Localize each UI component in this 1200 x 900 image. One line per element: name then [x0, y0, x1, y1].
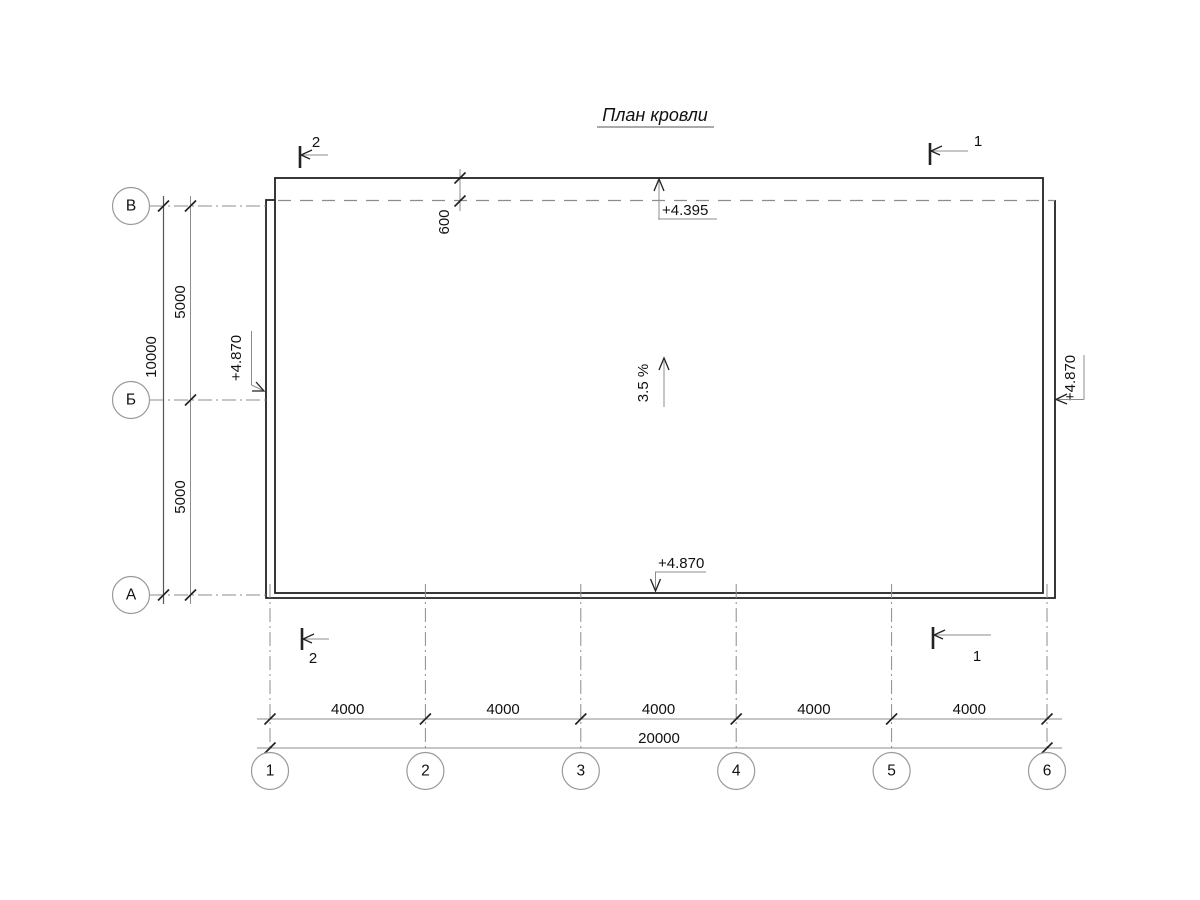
- drawing-title: План кровли: [602, 105, 708, 125]
- section-mark-bottom-left: 2: [302, 628, 329, 667]
- section-mark-top-right: 1: [930, 133, 982, 165]
- axis-bubble-3-label: 3: [576, 763, 585, 780]
- dim-text-row-span-1: 5000: [172, 285, 189, 318]
- elevation-text-right: +4.870: [1062, 355, 1079, 401]
- dim-text-col-total: 20000: [638, 730, 680, 747]
- building-outlines: [266, 178, 1055, 598]
- elevation-text-left: +4.870: [228, 335, 245, 381]
- row-axis-lines: [150, 206, 266, 595]
- elevation-mark-bottom: +4.870: [651, 555, 707, 591]
- section-label: 1: [974, 133, 982, 150]
- axis-bubble-a-label: А: [126, 587, 137, 604]
- dim-text-row-span-2: 5000: [172, 480, 189, 513]
- section-label: 2: [312, 134, 320, 151]
- section-label: 2: [309, 650, 317, 667]
- elevation-mark-right: +4.870: [1056, 355, 1084, 404]
- dim-text-col-span-1: 4000: [331, 701, 364, 718]
- axis-bubble-5-label: 5: [887, 763, 896, 780]
- elevation-mark-left: +4.870: [228, 331, 264, 391]
- axis-bubble-6-label: 6: [1043, 763, 1052, 780]
- axis-bubble-1-label: 1: [266, 763, 275, 780]
- eaves-outer-outline: [266, 200, 1055, 598]
- roof-plan-drawing: План кровли В Б А 5000 5000 10000: [0, 0, 1200, 900]
- dim-text-col-span-3: 4000: [642, 701, 675, 718]
- bottom-dimension-block: 4000 4000 4000 4000 4000 20000: [257, 701, 1062, 754]
- elevation-text-top: +4.395: [662, 202, 708, 219]
- section-mark-top-left: 2: [300, 134, 328, 168]
- dim-text-col-span-4: 4000: [797, 701, 830, 718]
- section-label: 1: [973, 648, 981, 665]
- dim-text-col-span-2: 4000: [486, 701, 519, 718]
- dim-text-overhang: 600: [436, 209, 453, 234]
- drawing-svg: План кровли В Б А 5000 5000 10000: [0, 0, 1200, 900]
- slope-text: 3.5 %: [635, 364, 652, 402]
- dim-text-row-total: 10000: [143, 336, 160, 378]
- slope-mark: 3.5 %: [635, 358, 669, 407]
- axis-bubble-v-label: В: [126, 198, 136, 215]
- roof-slab-outline: [275, 178, 1043, 593]
- elevation-mark-top: +4.395: [654, 179, 717, 219]
- col-axis-bubbles: 1 2 3 4 5 6: [252, 753, 1066, 790]
- axis-bubble-b-label: Б: [126, 392, 136, 409]
- row-axis-bubbles: В Б А: [113, 188, 150, 614]
- section-mark-bottom-right: 1: [933, 627, 991, 665]
- axis-bubble-2-label: 2: [421, 763, 430, 780]
- axis-bubble-4-label: 4: [732, 763, 741, 780]
- col-axis-lines: [270, 584, 1047, 752]
- elevation-text-bottom: +4.870: [658, 555, 704, 572]
- dim-text-col-span-5: 4000: [953, 701, 986, 718]
